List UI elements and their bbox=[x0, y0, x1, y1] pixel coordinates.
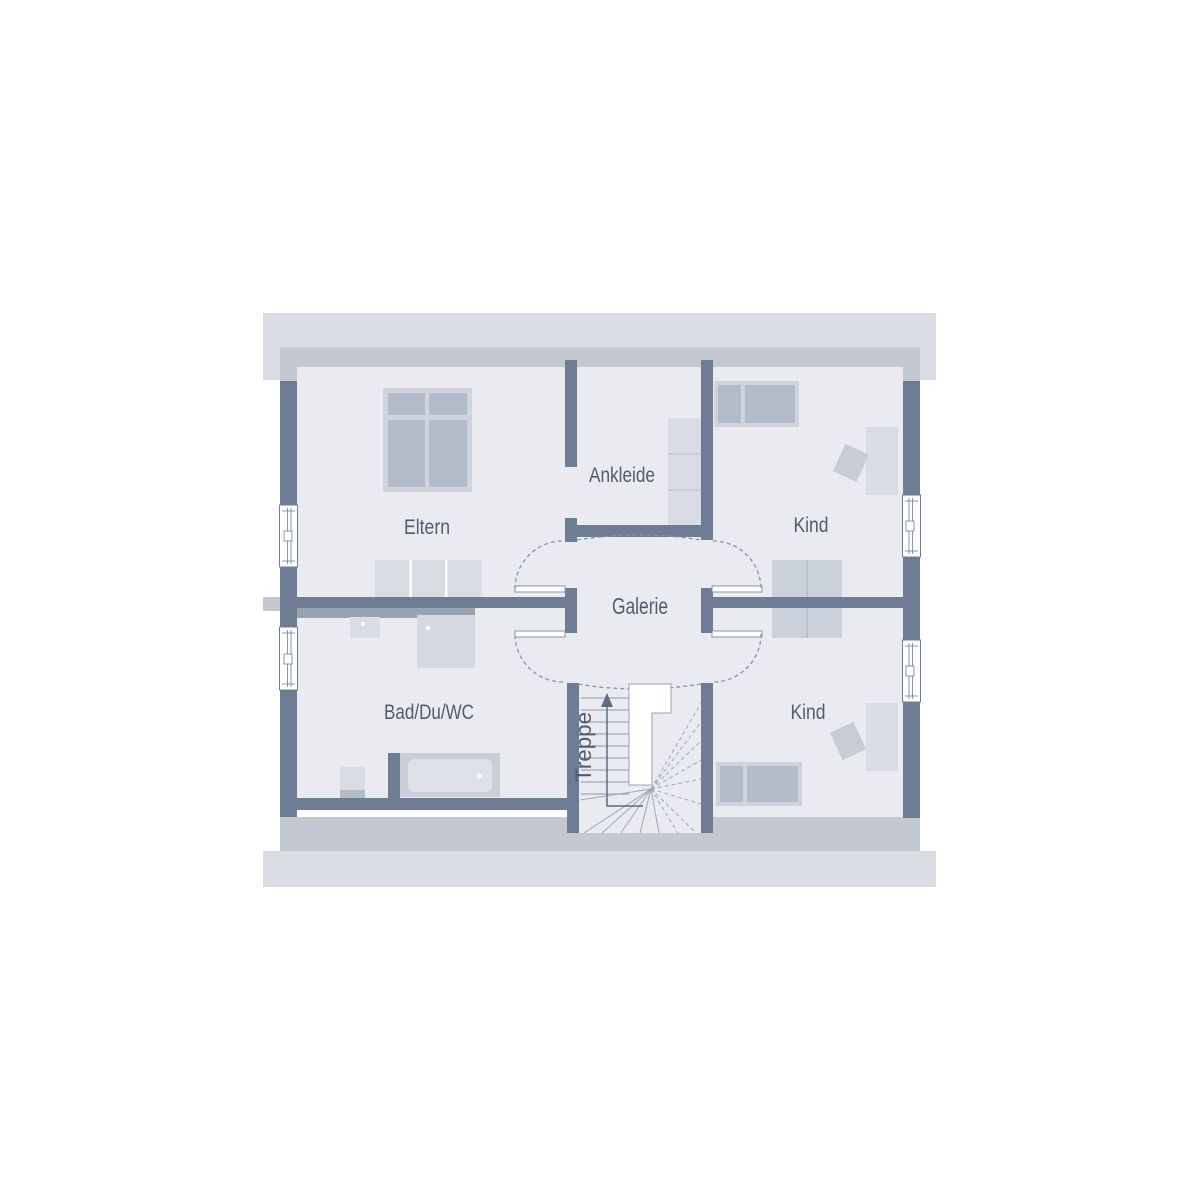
shower bbox=[417, 615, 475, 668]
room-label-treppe: Treppe bbox=[571, 712, 596, 782]
wall-stub-bad bbox=[388, 753, 400, 798]
bathtub bbox=[400, 753, 500, 797]
bed-mattress bbox=[388, 420, 425, 487]
door-post-east bbox=[701, 588, 713, 633]
toilet bbox=[340, 767, 365, 800]
desk-kind-bottom bbox=[866, 703, 898, 771]
door-leaf bbox=[712, 631, 762, 637]
room-label-eltern: Eltern bbox=[404, 516, 450, 539]
room-label-galerie: Galerie bbox=[612, 593, 668, 619]
window-kind-bottom bbox=[903, 640, 921, 702]
exterior-wall-left bbox=[280, 381, 297, 817]
floor-plan-page: Treppe Eltern Ankleide Kind Galerie Kind… bbox=[0, 0, 1200, 1200]
door-leaf bbox=[712, 586, 762, 592]
bed-pillow bbox=[429, 393, 467, 415]
wall-kind-divider bbox=[713, 597, 903, 608]
door-leaf bbox=[515, 586, 565, 592]
room-label-kind-top: Kind bbox=[794, 514, 829, 537]
wall-nub-left bbox=[263, 597, 280, 611]
wall-stub-ankleide bbox=[565, 518, 577, 542]
bed-kind-bottom bbox=[716, 762, 802, 806]
room-label-bad: Bad/Du/WC bbox=[384, 701, 474, 724]
floor-plan-drawing: Treppe Eltern Ankleide Kind Galerie Kind… bbox=[0, 0, 1200, 1200]
window-bad bbox=[280, 627, 298, 690]
door-leaf bbox=[515, 631, 565, 637]
bed-pillow bbox=[388, 393, 425, 415]
washbasin bbox=[350, 617, 380, 638]
desk-kind-top bbox=[866, 427, 898, 495]
wall-stair-east bbox=[701, 683, 713, 833]
wall-eltern-bad bbox=[297, 597, 565, 608]
gap-bad-bottom bbox=[297, 810, 569, 817]
door-post-west bbox=[565, 588, 577, 633]
wall-eltern-ankleide bbox=[565, 360, 577, 467]
wardrobe-ankleide bbox=[668, 418, 701, 525]
wall-bad-bottom bbox=[297, 798, 569, 810]
exterior-wall-right bbox=[903, 381, 920, 818]
window-eltern bbox=[280, 505, 298, 567]
bed-eltern bbox=[383, 388, 472, 492]
roof-overhang-bottom bbox=[263, 851, 936, 887]
room-label-ankleide: Ankleide bbox=[589, 464, 655, 487]
wall-ankleide-kind bbox=[701, 360, 713, 540]
dresser-eltern bbox=[375, 560, 482, 597]
bed-kind-top bbox=[714, 381, 799, 427]
bed-mattress bbox=[429, 420, 467, 487]
window-kind-top bbox=[903, 495, 921, 557]
room-label-kind-bottom: Kind bbox=[791, 701, 826, 724]
wall-ankleide-bottom bbox=[577, 525, 701, 537]
